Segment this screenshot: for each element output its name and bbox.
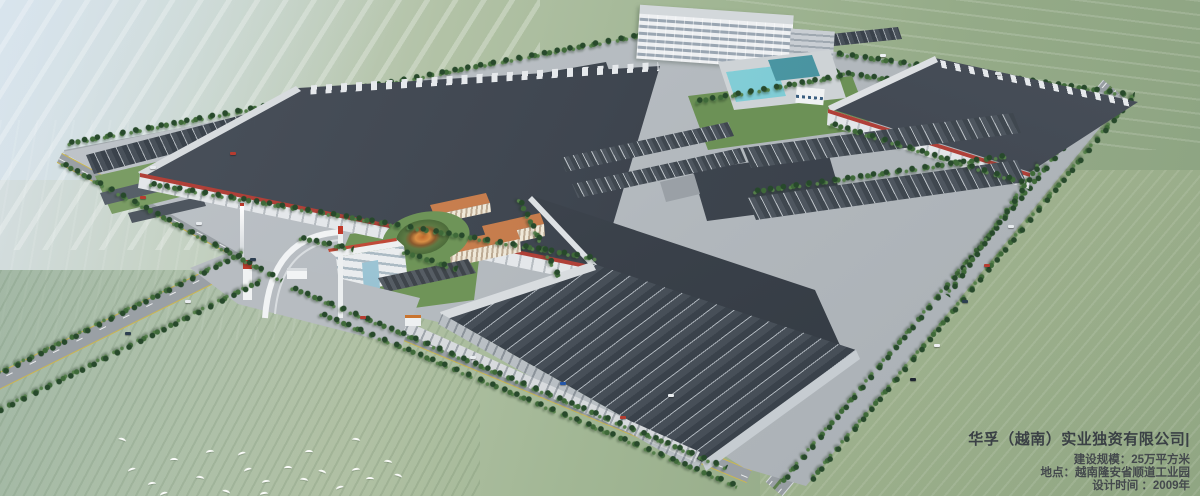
bird: [384, 459, 393, 465]
bird: [260, 491, 269, 496]
bird: [117, 437, 126, 444]
bird: [284, 466, 292, 471]
bird: [300, 477, 309, 483]
bird: [159, 491, 168, 496]
bird: [335, 485, 344, 492]
project-date: 设计时间 ：2009年: [968, 480, 1190, 493]
project-scale: 建设规模：25万平方米: [968, 454, 1190, 467]
bird: [393, 473, 402, 480]
bird: [170, 458, 178, 463]
bird: [352, 437, 361, 443]
bird: [127, 467, 136, 474]
project-info-overlay: 华孚（越南）实业独资有限公司| 建设规模：25万平方米 地点：越南隆安省顺道工业…: [968, 428, 1190, 493]
bird: [237, 451, 246, 458]
bird: [196, 475, 205, 481]
bird: [221, 489, 230, 496]
bird: [148, 481, 157, 487]
bird: [262, 479, 271, 485]
bird: [243, 467, 252, 474]
bird: [317, 469, 326, 476]
bird: [366, 477, 374, 482]
project-location: 地点：越南隆安省顺道工业园: [968, 467, 1190, 480]
bird: [206, 449, 215, 455]
project-title: 华孚（越南）实业独资有限公司|: [968, 428, 1190, 449]
aerial-rendering-industrial-park: 华孚（越南）实业独资有限公司| 建设规模：25万平方米 地点：越南隆安省顺道工业…: [0, 0, 1200, 496]
bird: [305, 450, 313, 455]
bird-flock: [0, 0, 1200, 496]
bird: [352, 467, 361, 473]
